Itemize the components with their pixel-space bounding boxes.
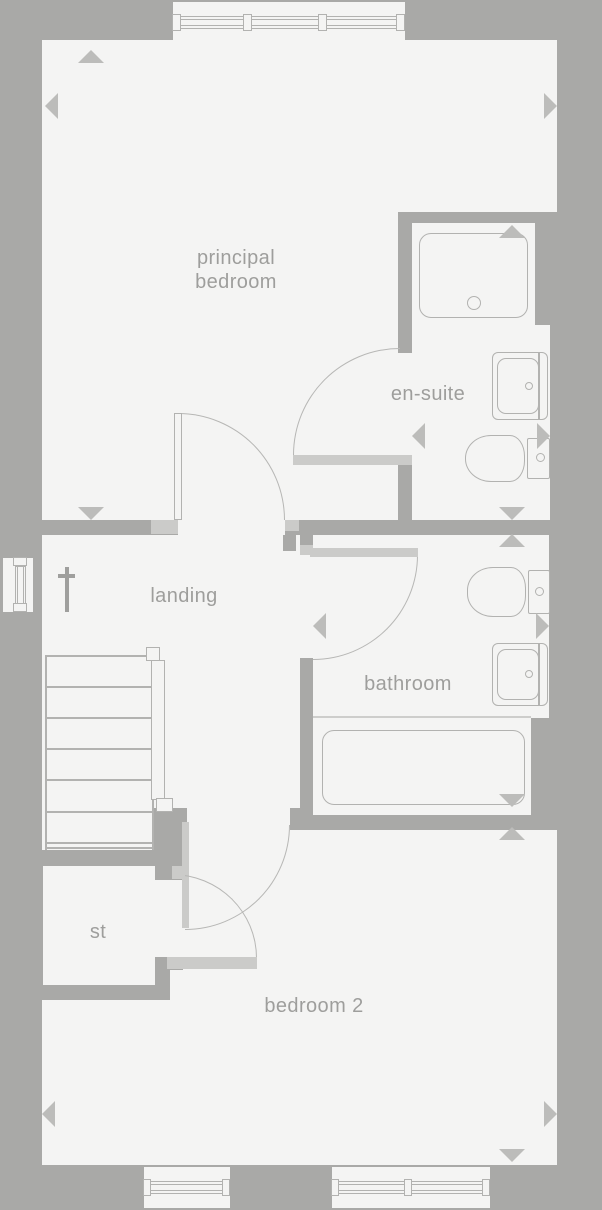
bathroom-door-opening [300, 555, 313, 658]
floor-plan: principal bedroom en-suite landing bathr… [0, 0, 602, 1210]
room-label-store: st [58, 920, 138, 944]
door-jamb [172, 866, 185, 879]
stair-tread [45, 811, 153, 813]
door-leaf-bathroom [310, 548, 418, 557]
dimension-arrow-left-icon [45, 93, 58, 119]
dimension-arrow-right-icon [544, 93, 557, 119]
window-mullion [243, 14, 252, 31]
basin-tap-bathroom [525, 670, 533, 678]
room-label-en-suite: en-suite [348, 382, 508, 406]
stair-tread [45, 748, 153, 750]
window-mullion [143, 1179, 151, 1196]
stair-tread [45, 779, 153, 781]
dimension-arrow-left-icon [42, 1101, 55, 1127]
bath-surround-edge [313, 716, 531, 718]
bath-tub [322, 730, 525, 805]
window-mullion [331, 1179, 339, 1196]
dimension-arrow-up-icon [78, 50, 104, 63]
dimension-arrow-up-icon [499, 225, 525, 238]
bedroom2-door-opening [187, 808, 290, 822]
window-glazing [177, 19, 401, 26]
handrail [151, 660, 165, 800]
room-label-landing: landing [104, 584, 264, 608]
floor-bedroom2 [42, 1000, 557, 1165]
window-glazing [17, 567, 24, 603]
window-mullion [222, 1179, 230, 1196]
stair-tread [45, 655, 153, 657]
door-jamb [300, 545, 313, 555]
dimension-arrow-down-icon [499, 507, 525, 520]
dimension-arrow-up-icon [499, 827, 525, 840]
floor-bedroom2-upper [290, 830, 557, 1000]
stair-edge [45, 655, 47, 850]
window-mullion [396, 14, 405, 31]
dimension-arrow-down-icon [78, 507, 104, 520]
toilet-bowl-bathroom [467, 567, 526, 617]
basin-ledge-line [538, 644, 540, 705]
dimension-arrow-down-icon [499, 794, 525, 807]
dimension-arrow-down-icon [499, 1149, 525, 1162]
toilet-bowl-ensuite [465, 435, 525, 482]
door-leaf-principal-bedroom [174, 413, 182, 520]
door-jamb [285, 520, 299, 531]
window-mullion [404, 1179, 412, 1196]
basin-ledge-line [538, 353, 540, 419]
stair-tread [45, 686, 153, 688]
shower-drain [467, 296, 481, 310]
window-mullion [482, 1179, 490, 1196]
dimension-arrow-up-icon [499, 534, 525, 547]
room-label-bathroom: bathroom [328, 672, 488, 696]
dimension-arrow-right-icon [537, 423, 550, 449]
dimension-arrow-right-icon [536, 613, 549, 639]
window-mullion [13, 557, 27, 566]
handrail-end [156, 798, 173, 812]
door-leaf-en-suite [293, 455, 412, 465]
floor-stairs-lower [42, 808, 153, 850]
wall-stub [283, 535, 296, 551]
stair-tread [45, 847, 153, 849]
window-mullion [172, 14, 181, 31]
window-mullion [13, 603, 27, 612]
dimension-arrow-left-icon [313, 613, 326, 639]
door-jamb [151, 520, 178, 534]
toilet-flush-ensuite [536, 453, 545, 462]
floor-store-threshold [170, 970, 183, 1000]
window-mullion [318, 14, 327, 31]
room-label-bedroom2: bedroom 2 [234, 994, 394, 1018]
basin-tap-ensuite [525, 382, 533, 390]
room-label-principal-bedroom: principal bedroom [116, 246, 356, 294]
door-leaf-store [167, 957, 257, 969]
toilet-flush-bathroom [535, 587, 544, 596]
newel-post [146, 647, 160, 661]
floor-landing [42, 535, 300, 808]
stair-tread [45, 717, 153, 719]
bedroom-door-opening [178, 520, 285, 535]
dimension-arrow-left-icon [412, 423, 425, 449]
stair-tread [45, 842, 153, 844]
dimension-arrow-right-icon [544, 1101, 557, 1127]
dagger-crossbar [58, 574, 75, 578]
window-glazing [148, 1184, 226, 1191]
